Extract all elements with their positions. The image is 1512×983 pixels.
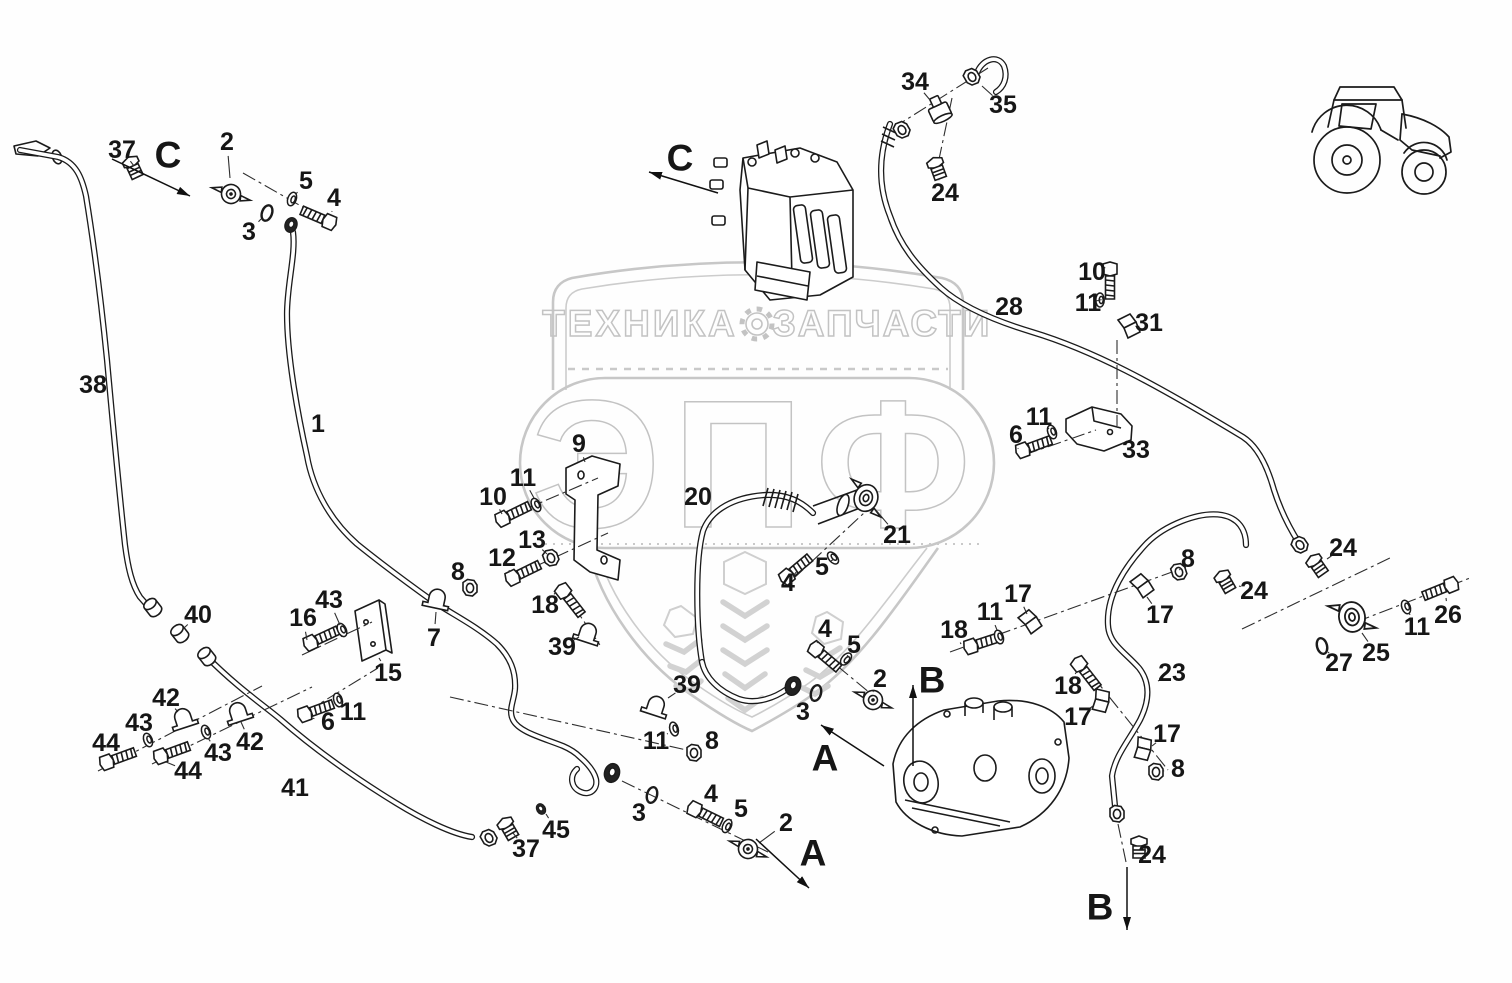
leader-line <box>647 801 648 802</box>
pump-assembly <box>893 698 1069 836</box>
part-darknut <box>602 762 621 784</box>
part-nut <box>1149 764 1163 781</box>
callout-45: 45 <box>542 816 570 844</box>
callout-24: 24 <box>1138 841 1166 869</box>
callout-16: 16 <box>289 604 317 632</box>
part-fitting <box>926 155 949 181</box>
callout-13: 13 <box>518 526 546 554</box>
part-nut <box>479 827 499 848</box>
callout-5: 5 <box>299 167 313 195</box>
callout-4: 4 <box>327 184 341 212</box>
callout-11: 11 <box>340 698 367 726</box>
callout-5: 5 <box>847 631 861 659</box>
section-letter-B: B <box>1087 887 1114 928</box>
callout-3: 3 <box>242 218 256 246</box>
part-washer <box>200 724 213 740</box>
callout-11: 11 <box>1026 403 1053 431</box>
valve-block <box>710 141 853 300</box>
gear-icon <box>742 309 772 339</box>
callout-43: 43 <box>315 586 343 614</box>
part-clamp <box>223 699 254 725</box>
callout-12: 12 <box>488 544 516 572</box>
part-darknut <box>534 802 547 816</box>
section-letter-C: C <box>155 135 182 176</box>
callout-8: 8 <box>1181 545 1195 573</box>
callout-25: 25 <box>1362 639 1390 667</box>
callout-4: 4 <box>781 569 795 597</box>
leader-line <box>335 613 340 625</box>
callout-18: 18 <box>531 591 559 619</box>
part-bolt <box>1421 576 1461 603</box>
callout-4: 4 <box>704 780 718 808</box>
callout-6: 6 <box>321 708 335 736</box>
callout-37: 37 <box>512 835 540 863</box>
part-darknut <box>283 216 299 234</box>
callout-43: 43 <box>125 709 153 737</box>
callout-17: 17 <box>1064 703 1092 731</box>
callout-39: 39 <box>673 671 701 699</box>
callout-42: 42 <box>236 728 264 756</box>
section-letter-A: A <box>812 738 839 779</box>
callout-4: 4 <box>818 615 832 643</box>
callout-33: 33 <box>1122 436 1150 464</box>
callout-31: 31 <box>1135 309 1163 337</box>
watermark-word-left: ТЕХНИКА <box>542 303 738 344</box>
leader-line <box>228 156 230 178</box>
tractor-icon <box>1312 87 1451 194</box>
callout-5: 5 <box>734 795 748 823</box>
part-oring <box>260 204 275 222</box>
callout-6: 6 <box>1009 421 1023 449</box>
diagram-page: ТЕХНИКА ЗАПЧАСТИ ЭПФ <box>0 0 1512 983</box>
callout-24: 24 <box>1329 534 1357 562</box>
part-clamp <box>640 693 671 719</box>
watermark-word-right: ЗАПЧАСТИ <box>773 303 992 344</box>
callout-26: 26 <box>1434 601 1462 629</box>
leader-line <box>700 803 701 804</box>
part-washer <box>668 721 680 737</box>
leader-line <box>258 219 261 222</box>
leader-line <box>759 831 775 843</box>
callout-9: 9 <box>572 430 586 458</box>
callout-38: 38 <box>79 371 107 399</box>
callout-8: 8 <box>705 727 719 755</box>
callout-2: 2 <box>873 665 887 693</box>
callout-42: 42 <box>152 684 180 712</box>
callout-10: 10 <box>1078 258 1106 286</box>
callout-8: 8 <box>1171 755 1185 783</box>
callout-11: 11 <box>1404 613 1431 641</box>
leader-line <box>731 819 732 820</box>
callout-41: 41 <box>281 774 309 802</box>
part-clamp <box>572 620 603 646</box>
callout-17: 17 <box>1146 601 1174 629</box>
callout-3: 3 <box>796 698 810 726</box>
callout-35: 35 <box>989 91 1017 119</box>
callout-23: 23 <box>1158 659 1186 687</box>
callout-24: 24 <box>1240 577 1268 605</box>
section-letter-B: B <box>919 660 946 701</box>
leader-line <box>700 748 701 749</box>
axis-line <box>1118 824 1126 862</box>
part-fitting <box>1304 551 1330 578</box>
callout-15: 15 <box>374 659 402 687</box>
callout-5: 5 <box>815 553 829 581</box>
leader-line <box>312 718 314 719</box>
part-nut <box>892 119 912 140</box>
callout-7: 7 <box>427 624 441 652</box>
callout-43: 43 <box>204 739 232 767</box>
callout-3: 3 <box>632 799 646 827</box>
part-darknut <box>783 675 804 698</box>
callout-27: 27 <box>1325 649 1353 677</box>
section-letter-C: C <box>667 138 694 179</box>
diagram-canvas: ТЕХНИКА ЗАПЧАСТИ ЭПФ <box>0 0 1512 983</box>
callout-1: 1 <box>311 410 325 438</box>
callout-17: 17 <box>1153 720 1181 748</box>
callout-40: 40 <box>184 601 212 629</box>
part-fitting <box>1213 567 1238 594</box>
section-letter-A: A <box>800 833 827 874</box>
callout-28: 28 <box>995 293 1023 321</box>
callout-18: 18 <box>940 616 968 644</box>
callout-44: 44 <box>174 757 202 785</box>
callout-2: 2 <box>220 128 234 156</box>
part-clip <box>1017 608 1043 635</box>
callout-21: 21 <box>883 521 911 549</box>
bracket-15 <box>355 600 392 661</box>
part-nut <box>687 745 701 762</box>
callout-44: 44 <box>92 729 120 757</box>
part-flange <box>212 179 251 209</box>
part-nut <box>1110 806 1124 823</box>
callout-24: 24 <box>931 179 959 207</box>
part-nut <box>463 580 477 597</box>
callout-18: 18 <box>1054 672 1082 700</box>
callout-10: 10 <box>479 483 507 511</box>
callout-11: 11 <box>510 464 537 492</box>
callout-11: 11 <box>643 727 670 755</box>
callout-11: 11 <box>1075 289 1102 317</box>
callout-39: 39 <box>548 633 576 661</box>
callout-8: 8 <box>451 558 465 586</box>
callout-20: 20 <box>684 483 712 511</box>
callout-2: 2 <box>779 809 793 837</box>
callout-34: 34 <box>901 68 929 96</box>
leader-line <box>435 612 436 624</box>
callout-17: 17 <box>1004 580 1032 608</box>
callout-11: 11 <box>977 598 1004 626</box>
leader-line <box>296 192 297 194</box>
